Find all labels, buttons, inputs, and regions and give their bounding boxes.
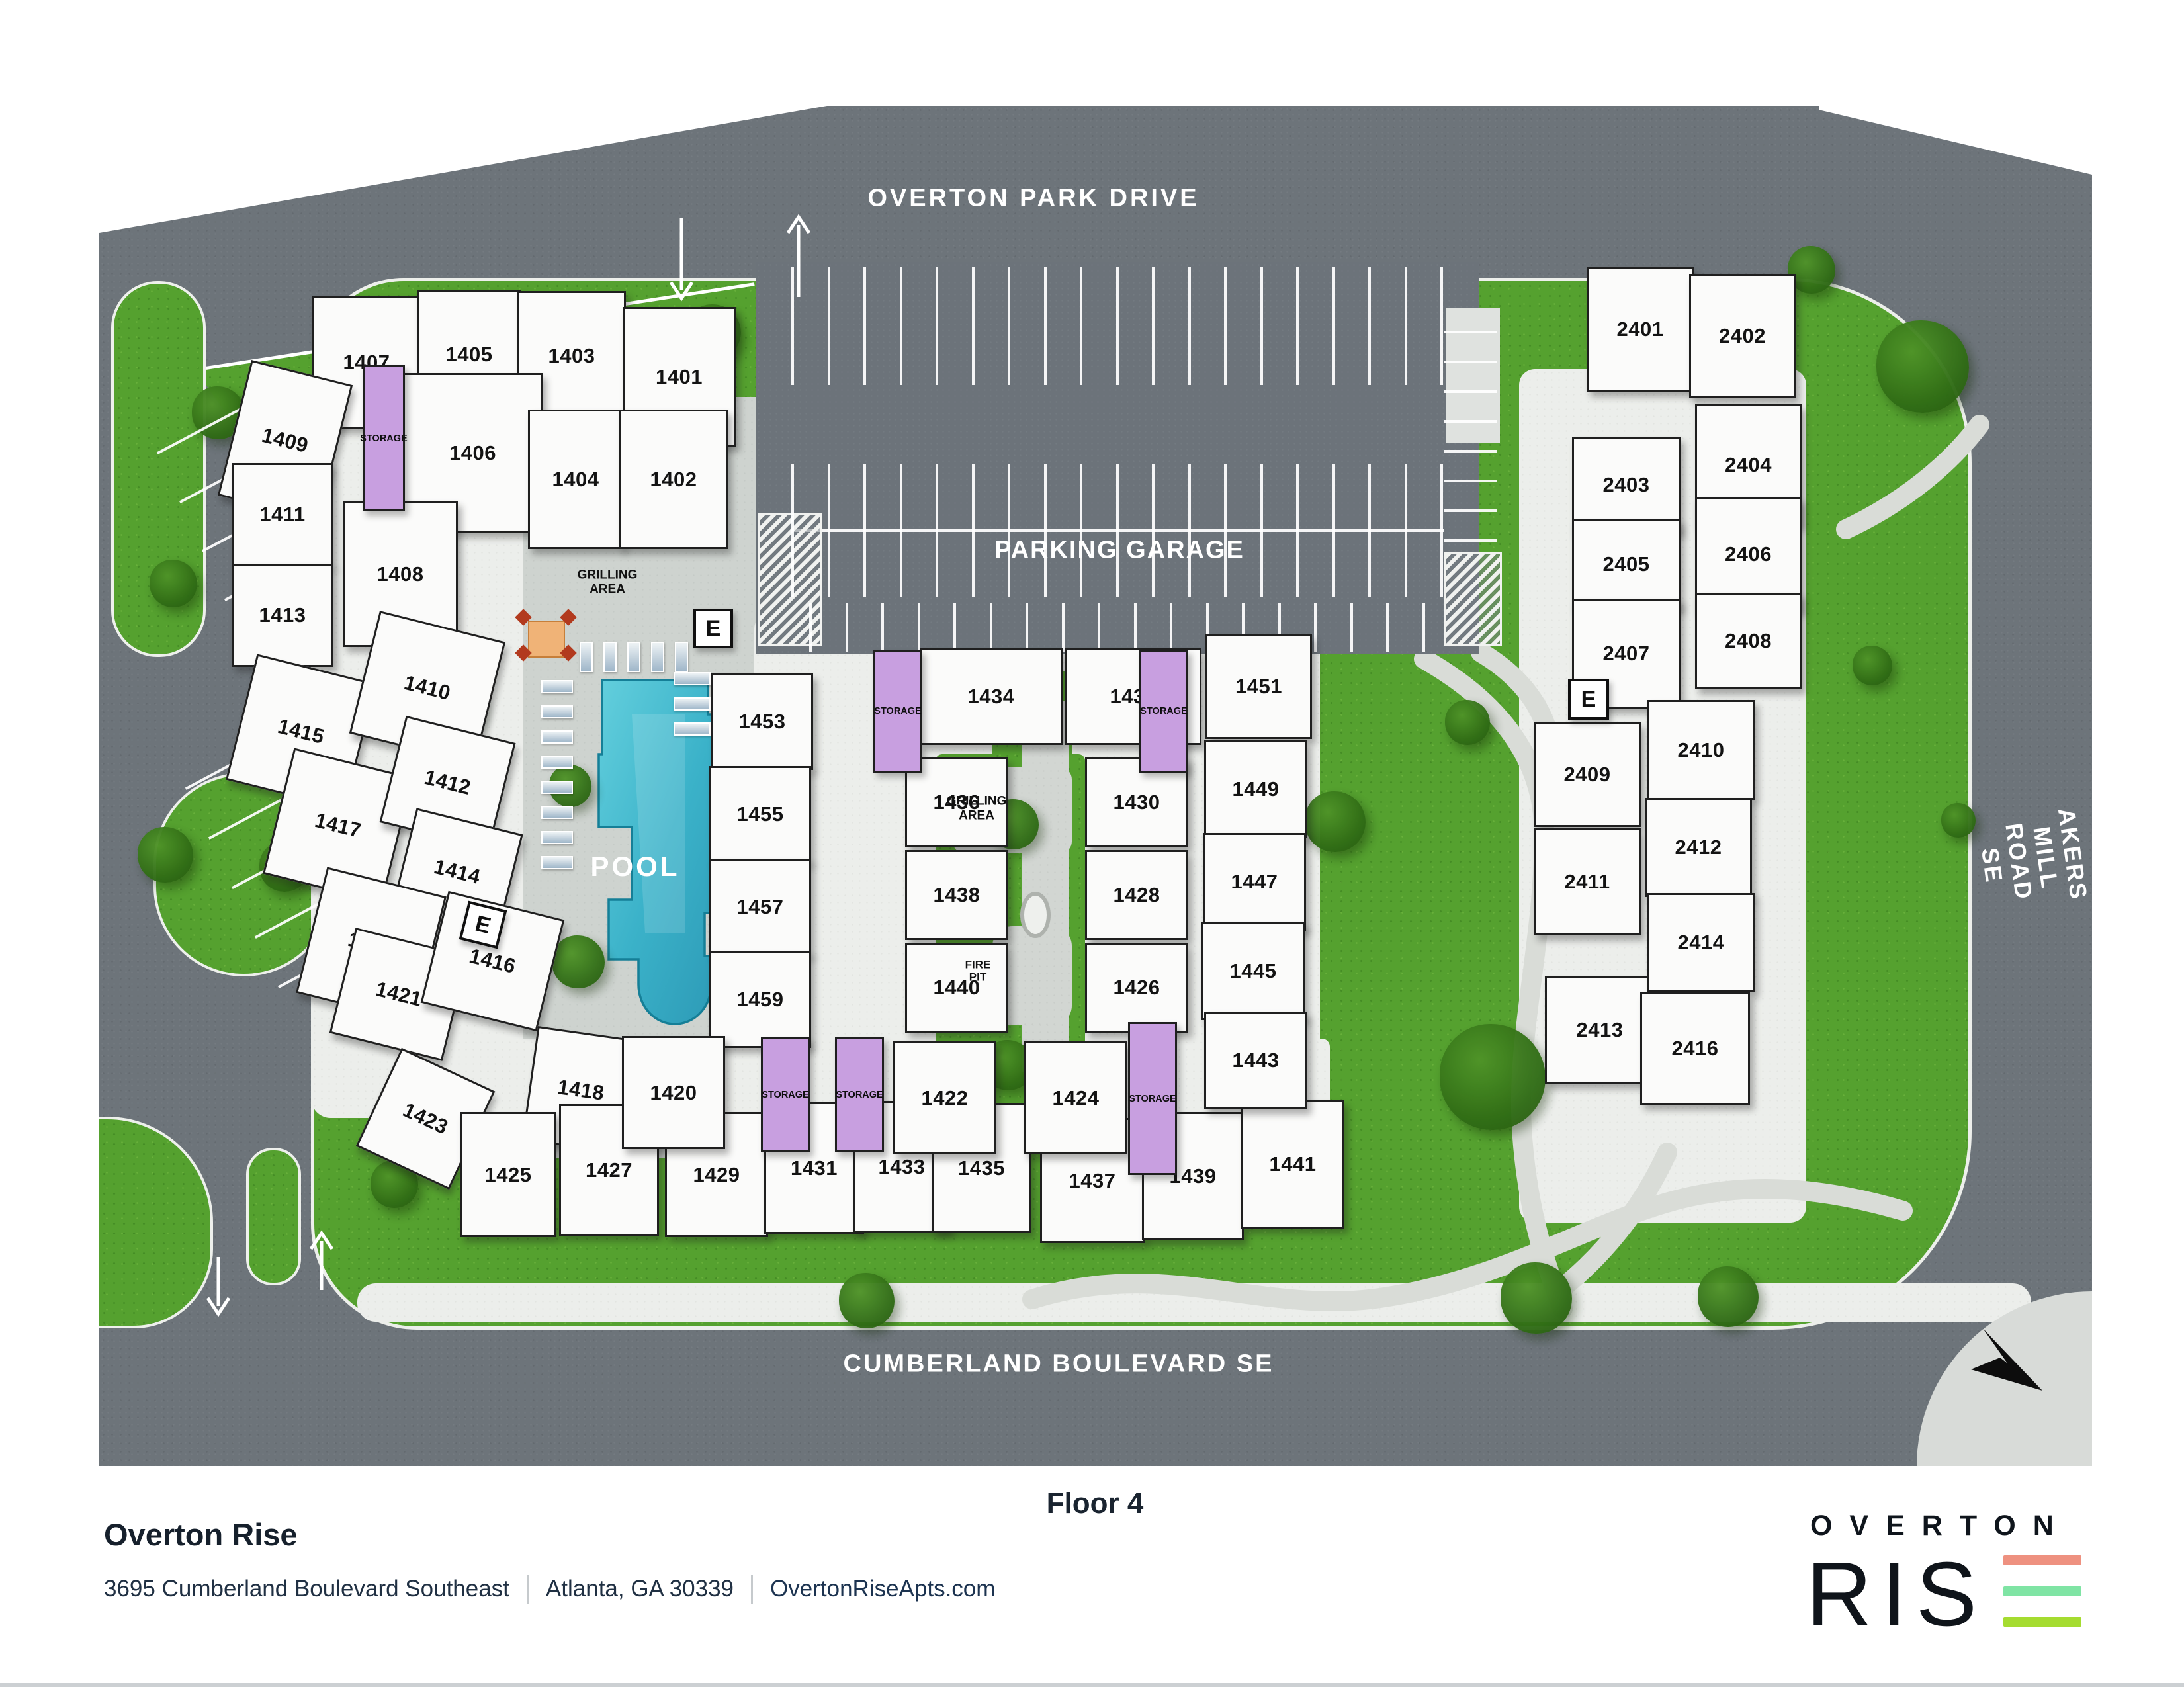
parking-stall-line (1224, 464, 1227, 597)
overton-rise-logo: OVERTON RIS (1806, 1510, 2081, 1640)
storage-label: STORAGE (360, 433, 407, 444)
unit-number: 2412 (1675, 836, 1722, 859)
pool-lounger (541, 756, 573, 769)
cumberland-boulevard-label: CUMBERLAND BOULEVARD SE (844, 1350, 1274, 1378)
parking-stall-line (1116, 267, 1119, 385)
unit-number: 2402 (1719, 324, 1766, 348)
corner-island (99, 1117, 213, 1328)
unit-number: 1459 (737, 988, 784, 1012)
fire-pit-label: FIRE PIT (965, 959, 991, 984)
parking-stall-line (900, 267, 902, 385)
floor-label: Floor 4 (1047, 1487, 1144, 1520)
logo-bar (2003, 1586, 2081, 1596)
unit-number: 1425 (485, 1163, 532, 1187)
unit-number: 1421 (373, 977, 425, 1012)
pool-lounger (674, 697, 711, 711)
parking-stall-line (809, 603, 812, 652)
unit-1455: 1455 (709, 766, 811, 863)
unit-1424: 1424 (1024, 1041, 1127, 1154)
unit-number: 1424 (1053, 1086, 1100, 1110)
parking-stall-line (1296, 464, 1299, 597)
unit-number: 1416 (467, 944, 519, 978)
address-row: 3695 Cumberland Boulevard Southeast Atla… (104, 1575, 995, 1604)
traffic-arrow-up (307, 1229, 336, 1295)
parking-stall-line (1444, 420, 1497, 423)
pool-lounger (541, 680, 573, 693)
parking-stall-line (1260, 267, 1263, 385)
unit-number: 1412 (422, 765, 474, 800)
unit-number: 2414 (1678, 931, 1725, 955)
parking-stall-line (1314, 603, 1317, 652)
storage-block: STORAGE (835, 1037, 884, 1152)
tree (138, 827, 193, 883)
logo-wordmark-top: OVERTON (1810, 1510, 2081, 1542)
storage-block: STORAGE (1128, 1022, 1177, 1175)
unit-2401: 2401 (1587, 267, 1694, 392)
unit-number: 2404 (1725, 453, 1772, 477)
unit-2416: 2416 (1640, 992, 1750, 1105)
unit-1441: 1441 (1241, 1100, 1344, 1229)
parking-stall-line (1444, 331, 1497, 333)
tree (1853, 646, 1892, 685)
site-map: 1407140514031401140914061404140214111408… (99, 106, 2092, 1466)
parking-stall-line (1368, 267, 1371, 385)
storage-label: STORAGE (836, 1090, 883, 1100)
unit-1434: 1434 (920, 648, 1063, 745)
parking-stall-line (1350, 603, 1353, 652)
unit-1402: 1402 (619, 410, 728, 549)
unit-number: 2405 (1603, 552, 1650, 576)
unit-number: 2416 (1672, 1037, 1719, 1060)
unit-1451: 1451 (1205, 634, 1312, 739)
parking-stall-line (1008, 464, 1010, 597)
unit-number: 1445 (1230, 959, 1277, 983)
fire-pit-ring (1020, 892, 1051, 938)
parking-stall-line (953, 603, 956, 652)
unit-number: 1427 (586, 1158, 633, 1182)
unit-number: 2413 (1577, 1018, 1624, 1042)
tree (1445, 700, 1490, 745)
parking-stall-line (1405, 267, 1407, 385)
grilling-area-central-label: GRILLING AREA (947, 794, 1007, 822)
parking-stall-line (791, 464, 794, 597)
parking-stall-line (936, 464, 938, 597)
unit-number: 1418 (556, 1075, 605, 1105)
pool-lounger (651, 642, 664, 672)
logo-wordmark-ris: RIS (1806, 1549, 1986, 1640)
property-name: Overton Rise (104, 1516, 298, 1553)
unit-number: 2406 (1725, 542, 1772, 566)
pool-lounger (541, 806, 573, 819)
storage-block: STORAGE (873, 650, 922, 773)
unit-number: 2411 (1564, 870, 1610, 894)
parking-stall-line (1044, 267, 1047, 385)
unit-1413: 1413 (232, 564, 333, 667)
grilling-area-west-label: GRILLING AREA (578, 568, 638, 596)
parking-stall-line (990, 603, 992, 652)
logo-bar (2003, 1555, 2081, 1565)
parking-stall-line (1296, 267, 1299, 385)
parking-stall-line (1170, 603, 1172, 652)
unit-number: 1431 (791, 1156, 838, 1180)
unit-number: 1426 (1114, 976, 1160, 1000)
parking-stall-line (1044, 464, 1047, 597)
parking-garage-label: PARKING GARAGE (994, 536, 1245, 564)
unit-number: 1420 (650, 1081, 697, 1105)
parking-stall-line (936, 267, 938, 385)
crosswalk-hatch (758, 513, 822, 646)
parking-stall-line (1188, 464, 1191, 597)
parking-stall-line (972, 464, 975, 597)
parking-stall-line (1116, 464, 1119, 597)
unit-number: 1410 (402, 670, 453, 705)
parking-stall-line (1440, 267, 1443, 385)
parking-stall-line (1444, 509, 1497, 512)
tree (150, 560, 197, 607)
parking-stall-line (972, 267, 975, 385)
unit-number: 1408 (377, 562, 424, 586)
parking-stall-line (1098, 603, 1100, 652)
pool-lounger (541, 730, 573, 744)
unit-1404: 1404 (528, 410, 623, 549)
pool-lounger (603, 642, 617, 672)
pool-lounger (541, 856, 573, 869)
unit-number: 2409 (1564, 763, 1611, 787)
storage-label: STORAGE (762, 1090, 808, 1100)
unit-1420: 1420 (622, 1036, 725, 1149)
pool-lounger (541, 831, 573, 844)
pool-lounger (627, 642, 640, 672)
unit-number: 2408 (1725, 629, 1772, 653)
unit-number: 1406 (449, 441, 496, 465)
parking-stall-line (1444, 480, 1497, 482)
unit-number: 1453 (739, 710, 786, 734)
parking-stall-line (1444, 361, 1497, 363)
pool-lounger (675, 642, 688, 672)
tree (1941, 803, 1976, 838)
tree (1698, 1266, 1759, 1327)
unit-number: 2401 (1617, 318, 1664, 341)
crosswalk-hatch (1444, 552, 1502, 646)
unit-number: 1434 (968, 685, 1015, 709)
garage-entry-pad (1446, 308, 1500, 443)
akers-mill-road-label: AKERS MILL ROAD SE (1972, 806, 2092, 914)
parking-stall-line (1386, 603, 1389, 652)
city-state-zip: Atlanta, GA 30339 (546, 1576, 734, 1602)
unit-number: 1441 (1270, 1152, 1317, 1176)
map-corner-mask-left (99, 106, 827, 233)
unit-2410: 2410 (1647, 700, 1755, 800)
page-edge (0, 1683, 2184, 1687)
unit-1449: 1449 (1204, 740, 1307, 838)
unit-number: 1428 (1114, 883, 1160, 907)
storage-label: STORAGE (1140, 706, 1187, 716)
pool-lounger (674, 672, 711, 685)
unit-number: 1402 (650, 468, 697, 492)
parking-stall-line (1444, 390, 1497, 393)
elevator-marker: E (693, 609, 733, 648)
unit-number: 1429 (693, 1163, 740, 1187)
parking-stall-line (1260, 464, 1263, 597)
unit-number: 1415 (275, 714, 327, 749)
parking-stall-line (846, 603, 848, 652)
storage-label: STORAGE (1129, 1094, 1176, 1104)
parking-stall-line (1080, 464, 1082, 597)
unit-number: 1433 (879, 1155, 926, 1179)
parking-stall-line (918, 603, 920, 652)
parking-stall-line (1405, 464, 1407, 597)
storage-block: STORAGE (363, 365, 405, 511)
unit-number: 1435 (958, 1156, 1005, 1180)
divider (751, 1575, 753, 1604)
grill-table (528, 621, 565, 658)
unit-number: 1447 (1231, 870, 1278, 894)
street-address: 3695 Cumberland Boulevard Southeast (104, 1576, 509, 1602)
unit-1426: 1426 (1085, 943, 1188, 1033)
pool-label: POOL (590, 851, 679, 883)
tree (1305, 791, 1366, 852)
storage-block: STORAGE (1139, 650, 1188, 773)
unit-number: 1413 (259, 603, 306, 627)
divider (527, 1575, 529, 1604)
unit-number: 1404 (552, 468, 599, 492)
parking-stall-line (828, 464, 830, 597)
unit-1459: 1459 (709, 951, 811, 1048)
unit-2402: 2402 (1689, 274, 1796, 398)
parking-stall-line (1188, 267, 1191, 385)
unit-number: 1411 (259, 503, 305, 527)
unit-1453: 1453 (711, 673, 813, 770)
parking-stall-line (828, 267, 830, 385)
median-island (246, 1148, 301, 1285)
unit-1443: 1443 (1204, 1012, 1307, 1109)
south-sidewalk (357, 1283, 2031, 1322)
unit-number: 1417 (312, 808, 364, 843)
unit-1447: 1447 (1203, 833, 1306, 931)
unit-1422: 1422 (893, 1041, 996, 1154)
traffic-arrow-up (784, 213, 813, 302)
parking-stall-line (863, 464, 866, 597)
unit-2408: 2408 (1695, 593, 1802, 689)
unit-number: 1409 (259, 423, 311, 457)
unit-number: 1414 (431, 855, 483, 889)
parking-stall-line (1440, 464, 1443, 597)
parking-stall-line (1134, 603, 1137, 652)
unit-2409: 2409 (1534, 722, 1641, 827)
pool-lounger (541, 705, 573, 718)
storage-label: STORAGE (874, 706, 921, 716)
tree (1501, 1262, 1572, 1334)
unit-1428: 1428 (1085, 850, 1188, 940)
website-link: OvertonRiseApts.com (770, 1576, 995, 1602)
unit-1457: 1457 (709, 859, 811, 955)
pool-lounger (580, 642, 593, 672)
unit-number: 2407 (1603, 642, 1650, 666)
unit-1425: 1425 (460, 1112, 556, 1237)
unit-number: 1455 (737, 802, 784, 826)
storage-block: STORAGE (761, 1037, 810, 1152)
parking-stall-line (1152, 464, 1155, 597)
unit-number: 1422 (922, 1086, 969, 1110)
unit-number: 1401 (656, 365, 703, 389)
parking-stall-line (1332, 464, 1335, 597)
unit-number: 1438 (934, 883, 981, 907)
pool-lounger (674, 722, 711, 736)
unit-number: 1423 (399, 1098, 452, 1140)
unit-number: 1449 (1233, 777, 1280, 801)
unit-2411: 2411 (1534, 828, 1641, 935)
unit-2414: 2414 (1647, 893, 1755, 992)
parking-stall-line (1008, 267, 1010, 385)
parking-stall-line (1224, 267, 1227, 385)
page: { "page": { "floor_label": "Floor 4", "p… (0, 0, 2184, 1687)
tree (1876, 320, 1969, 413)
parking-stall-line (1080, 267, 1082, 385)
unit-2405: 2405 (1572, 519, 1681, 609)
unit-number: 2403 (1603, 473, 1650, 497)
overton-park-drive-label: OVERTON PARK DRIVE (867, 184, 1199, 212)
unit-1445: 1445 (1201, 922, 1305, 1020)
parking-stall-line (1152, 267, 1155, 385)
parking-stall-line (1062, 603, 1065, 652)
parking-stall-line (1332, 267, 1335, 385)
parking-stall-line (1368, 464, 1371, 597)
unit-1411: 1411 (232, 463, 333, 566)
parking-stall-line (1026, 603, 1028, 652)
parking-stall-line (863, 267, 866, 385)
unit-1440: 1440 (905, 943, 1008, 1033)
north-arrow-icon (1968, 1323, 2068, 1422)
unit-number: 1403 (548, 344, 595, 368)
unit-number: 2410 (1678, 738, 1725, 762)
logo-bar (2003, 1617, 2081, 1627)
map-corner-mask-right (1819, 106, 2092, 175)
unit-2413: 2413 (1545, 976, 1655, 1084)
parking-stall-line (900, 464, 902, 597)
tree (1440, 1024, 1546, 1130)
logo-e-bars-icon (2003, 1555, 2081, 1627)
tree (552, 935, 605, 988)
pool-lounger (541, 781, 573, 794)
unit-number: 1451 (1235, 675, 1282, 699)
unit-1438: 1438 (905, 850, 1008, 940)
parking-stall-line (1444, 539, 1497, 542)
elevator-marker: E (1568, 679, 1609, 720)
unit-number: 1405 (446, 343, 493, 367)
tree (839, 1273, 895, 1328)
unit-number: 1430 (1114, 791, 1160, 814)
parking-stall-line (1422, 603, 1425, 652)
parking-stall-line (881, 603, 884, 652)
unit-2412: 2412 (1645, 798, 1752, 897)
unit-number: 1437 (1069, 1169, 1116, 1193)
parking-stall-line (1444, 450, 1497, 453)
traffic-arrow-down (667, 213, 696, 302)
traffic-arrow-down (204, 1252, 233, 1318)
unit-number: 1443 (1233, 1049, 1280, 1072)
unit-number: 1457 (737, 895, 784, 919)
